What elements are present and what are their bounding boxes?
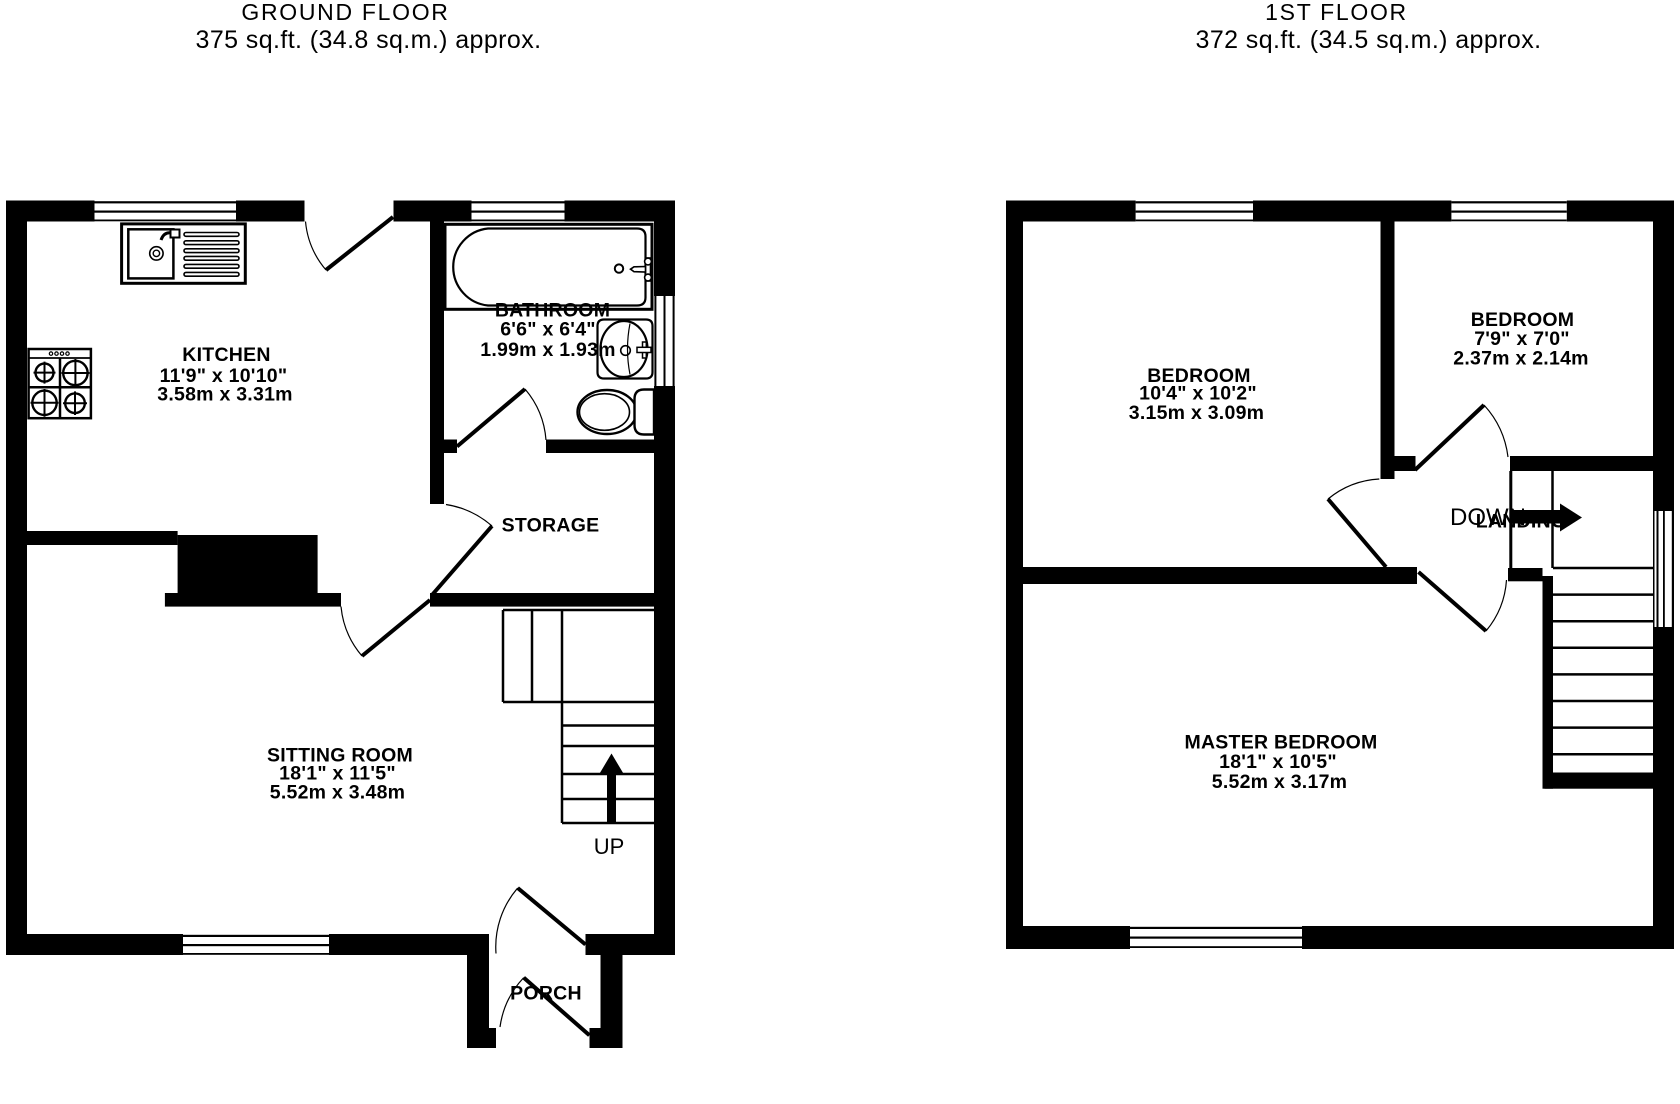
svg-text:375 sq.ft. (34.8 sq.m.) approx: 375 sq.ft. (34.8 sq.m.) approx.: [196, 26, 542, 54]
svg-text:3.15m x 3.09m: 3.15m x 3.09m: [1129, 402, 1265, 424]
svg-text:KITCHEN: KITCHEN: [182, 344, 270, 366]
svg-text:18'1" x 10'5": 18'1" x 10'5": [1219, 751, 1337, 773]
svg-text:DOWN: DOWN: [1450, 504, 1526, 531]
svg-text:1ST FLOOR: 1ST FLOOR: [1265, 0, 1408, 25]
svg-text:5.52m x 3.48m: 5.52m x 3.48m: [270, 782, 406, 804]
svg-text:5.52m x 3.17m: 5.52m x 3.17m: [1212, 771, 1348, 793]
svg-text:GROUND FLOOR: GROUND FLOOR: [241, 0, 449, 25]
svg-text:1.99m x 1.93m: 1.99m x 1.93m: [480, 339, 616, 361]
svg-text:UP: UP: [594, 834, 625, 859]
svg-text:STORAGE: STORAGE: [502, 515, 600, 537]
svg-text:PORCH: PORCH: [510, 983, 582, 1005]
svg-text:2.37m x 2.14m: 2.37m x 2.14m: [1453, 347, 1589, 369]
svg-text:372 sq.ft. (34.5 sq.m.) approx: 372 sq.ft. (34.5 sq.m.) approx.: [1196, 26, 1542, 54]
svg-text:6'6" x 6'4": 6'6" x 6'4": [500, 318, 596, 340]
svg-text:3.58m x 3.31m: 3.58m x 3.31m: [157, 384, 293, 406]
